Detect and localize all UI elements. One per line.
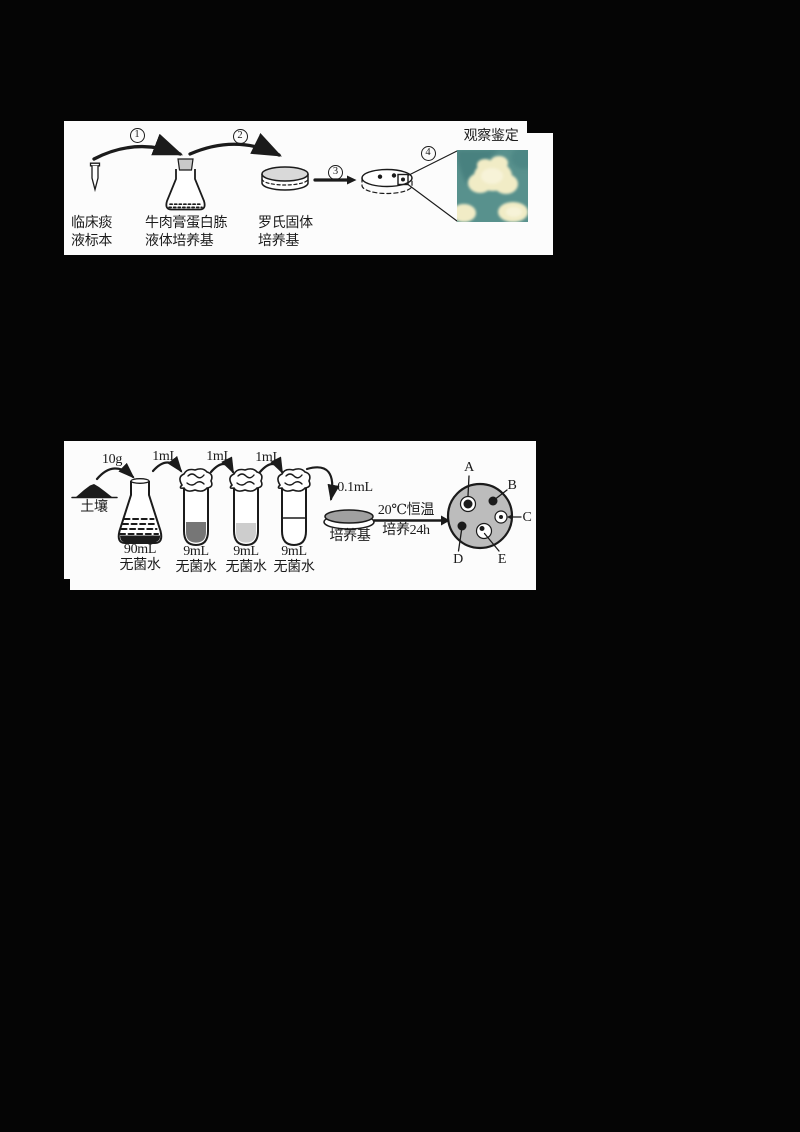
soil-dilution-diagram-panel: 10g 土壤 1mL 1mL 1mL 0.1mL 90mL 无菌水 9mL 无菌… [64, 441, 536, 590]
colony-D [458, 522, 467, 531]
soil-mass-label: 10g [102, 451, 122, 468]
step-1-badge: 1 [130, 128, 145, 143]
arrow-step1 [94, 147, 180, 159]
inoculated-dish [362, 170, 412, 194]
panel1-corner-notch [527, 121, 553, 133]
plate-transfer-label: 0.1mL [337, 479, 372, 496]
colony-label-B: B [507, 477, 516, 494]
transfer-label-1: 1mL [152, 448, 178, 465]
culture-plate [324, 510, 374, 529]
tube2-volume-label: 9mL [233, 543, 259, 560]
arrow-1ml-2 [211, 464, 233, 472]
slide-background: { "panel1": { "step_numbers": ["1","2","… [0, 0, 800, 1132]
flask-volume-label: 90mL [124, 541, 156, 558]
incubation-label-line1: 20℃恒温 [378, 502, 434, 519]
colony-dot [378, 175, 382, 179]
dilution-tube-3 [278, 469, 310, 545]
colony-label-A: A [464, 459, 474, 476]
observe-identify-label: 观察鉴定 [464, 128, 519, 145]
soil-label: 土壤 [80, 499, 107, 516]
tube1-water-label: 无菌水 [175, 559, 216, 576]
dilution-tube-1 [180, 469, 212, 545]
colony-A [461, 497, 476, 512]
sputum-culture-diagram-panel: 1 2 3 4 临床痰 液标本 牛肉膏蛋白胨 液体培养基 罗氏固体 培养基 观察… [64, 121, 553, 255]
plate-label: 培养基 [329, 528, 370, 545]
colony-photo [457, 150, 528, 222]
tube2-water-label: 无菌水 [225, 559, 266, 576]
tube3-water-label: 无菌水 [273, 559, 314, 576]
sterile-water-flask [119, 479, 162, 543]
liquid-medium-flask [166, 159, 204, 210]
dish-label-line2: 培养基 [258, 233, 299, 250]
panel2-corner-notch [64, 579, 70, 590]
step-3-badge: 3 [328, 165, 343, 180]
colony-label-C: C [522, 509, 531, 526]
colony-dot [392, 173, 396, 177]
dilution-tube-2 [230, 469, 262, 545]
arrow-step2 [190, 144, 279, 155]
sample-tube [91, 163, 100, 189]
flask-label-line2: 液体培养基 [145, 233, 214, 250]
sample-label-line2: 液标本 [71, 233, 112, 250]
colony-label-D: D [453, 551, 463, 568]
flask-water-label: 无菌水 [119, 557, 160, 574]
colony-C [495, 511, 507, 523]
transfer-label-3: 1mL [255, 449, 281, 466]
soil-mound [72, 484, 117, 498]
solid-medium-dish [262, 167, 308, 190]
colony-E [477, 524, 492, 539]
colony-photo-image [457, 150, 528, 222]
step-4-badge: 4 [421, 146, 436, 161]
tube2-liquid [236, 523, 256, 543]
dish-label-line1: 罗氏固体 [258, 215, 313, 232]
flask-label-line1: 牛肉膏蛋白胨 [145, 215, 227, 232]
arrow-10g [97, 468, 133, 479]
tube3-volume-label: 9mL [281, 543, 307, 560]
colony-label-E: E [498, 551, 506, 568]
zoom-lines [408, 151, 457, 221]
tube1-volume-label: 9mL [183, 543, 209, 560]
arrow-01ml [307, 467, 332, 499]
step-2-badge: 2 [233, 129, 248, 144]
sample-label-line1: 临床痰 [71, 215, 112, 232]
tube1-liquid [186, 522, 206, 543]
incubation-label-line2: 培养24h [382, 522, 430, 539]
transfer-label-2: 1mL [206, 448, 232, 465]
